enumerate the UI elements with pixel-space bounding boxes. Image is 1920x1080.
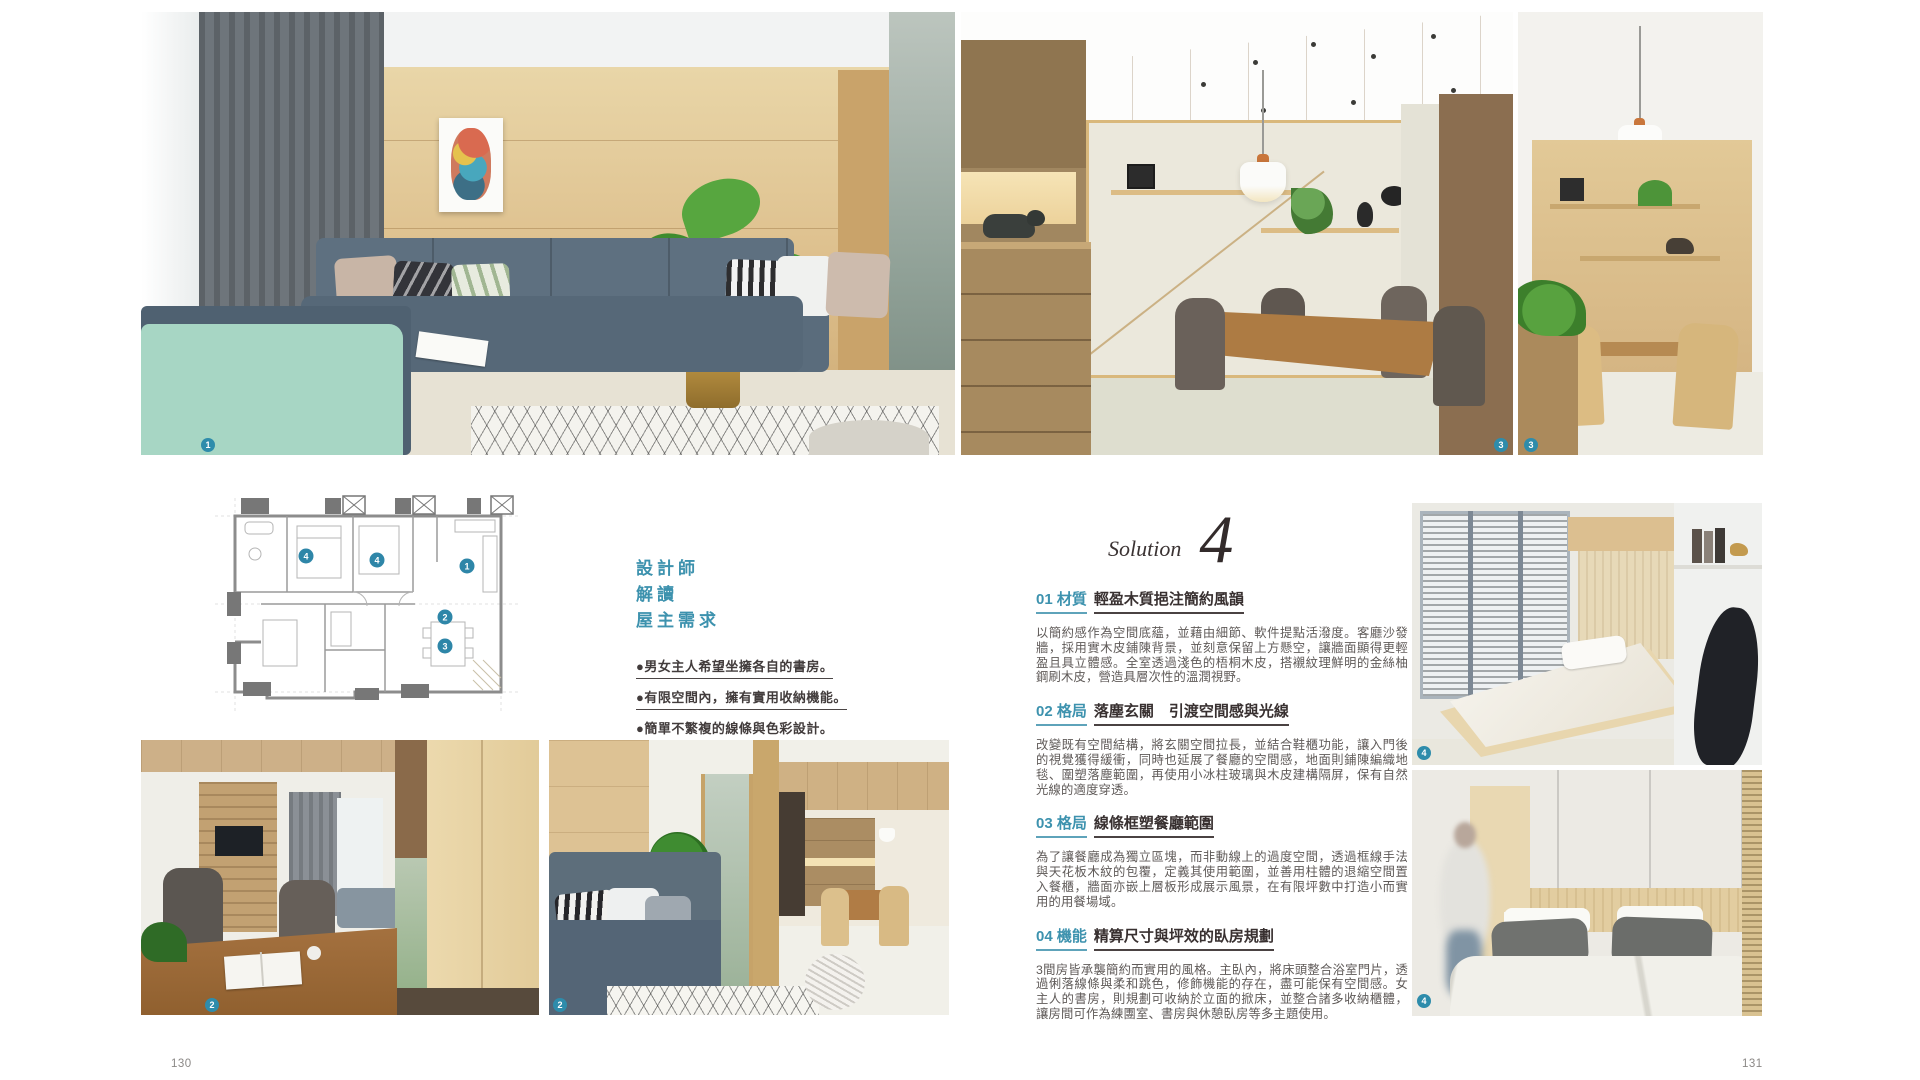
wall-shelf [1550,204,1700,209]
section-02-layout: 02 格局落塵玄關 引渡空間感與光線 改變既有空間結構，將玄關空間拉長，並結合鞋… [1036,700,1408,797]
mug [307,946,321,960]
requirement-item: ●簡單不繁複的線條與色彩設計。 [636,718,833,741]
section-heading: 03 格局線條框塑餐廳範圍 [1036,812,1408,838]
tv [215,826,263,856]
section-04-function: 04 機能精算尺寸與坪效的臥房規劃 3間房皆承襲簡約而實用的風格。主臥內，將床頭… [1036,925,1408,1022]
plan-marker-2: 2 [442,613,447,623]
downlights [1201,82,1206,87]
wardrobe [427,740,539,998]
photo-murphy-bed-room: 4 [1412,503,1762,765]
planter-box [1518,318,1578,455]
blinds [1742,770,1762,1016]
pendant-lamp [1240,162,1286,202]
wood-valance [1568,517,1680,551]
bear-artwork [439,118,503,212]
section-03-layout: 03 格局線條框塑餐廳範圍 為了讓餐廳成為獨立區塊，而非動線上的過度空間，透過框… [1036,812,1408,909]
pillow [825,251,890,318]
entry-door [777,792,805,916]
solution-sections: 01 材質輕盈木質挹注簡約風韻 以簡約感作為空間底蘊，並藉由細節、軟件提點活潑度… [1036,588,1408,1037]
bed-duvet [1450,956,1762,1016]
wood-column [753,740,779,992]
designer-notes-title: 設計師 解讀 屋主需求 [636,556,866,634]
hanging-plant [1291,188,1333,236]
window [337,798,383,896]
photo-study-corridor: 2 [141,740,539,1015]
photo-dining-room: 3 [961,12,1513,455]
wall-shelf [1261,228,1399,233]
requirement-item: ●有限空間內，擁有實用收納機能。 [636,687,847,710]
wood-chair [879,886,909,946]
gold-bird-ornament [1730,543,1748,556]
page-number-right: 131 [1742,1058,1763,1070]
solution-label: Solution [1108,536,1181,570]
plan-marker-3: 3 [442,642,447,652]
vase [1357,202,1373,227]
solution-number: 4 [1199,508,1233,570]
photo-number-badge: 3 [1494,438,1508,452]
section-body: 為了讓餐廳成為獨立區塊，而非動線上的過度空間，透過框線手法與天花板木紋的包覆，定… [1036,850,1408,909]
photo-number-badge: 2 [205,998,219,1012]
photo-number-badge: 4 [1417,746,1431,760]
section-body: 以簡約感作為空間底蘊，並藉由細節、軟件提點活潑度。客廳沙發牆，採用實木皮鋪陳背景… [1036,626,1408,685]
books [1692,529,1702,563]
section-heading: 04 機能精算尺寸與坪效的臥房規劃 [1036,925,1408,951]
dining-chair [1433,306,1485,406]
floor-plan: 4 4 1 2 3 [205,492,530,720]
plan-marker-1: 1 [464,562,469,572]
wood-chair [1672,322,1739,430]
dining-chair [1175,298,1225,390]
photo-number-badge: 1 [201,438,215,452]
section-heading: 01 材質輕盈木質挹注簡約風韻 [1036,588,1408,614]
plant [141,922,187,962]
photo-number-badge: 3 [1524,438,1538,452]
framed-photo [1560,178,1584,201]
mint-throw-blanket [141,324,403,455]
knit-pouf [809,420,929,455]
designer-notes: 設計師 解讀 屋主需求 ●男女主人希望坐擁各自的書房。 ●有限空間內，擁有實用收… [636,556,866,749]
photo-dining-nook: 3 [1518,12,1763,455]
page-number-left: 130 [171,1058,192,1070]
photo-living-room: 1 [141,12,955,455]
geometric-rug [607,986,819,1015]
magazine-spread: DESIGN 1 [0,0,1920,1080]
figurine [1666,238,1694,254]
section-heading: 02 格局落塵玄關 引渡空間感與光線 [1036,700,1408,726]
plant [1638,180,1672,206]
requirement-item: ●男女主人希望坐擁各自的書房。 [636,656,833,679]
plan-marker-4a: 4 [303,552,308,562]
section-body: 改變既有空間結構，將玄關空間拉長，並結合鞋櫃功能，讓入門後的視覺獲得緩衝，同時也… [1036,738,1408,797]
photo-entry-sofa: 2 [549,740,949,1015]
plan-marker-4b: 4 [374,556,379,566]
sideboard [961,249,1091,455]
owner-requirements-list: ●男女主人希望坐擁各自的書房。 ●有限空間內，擁有實用收納機能。 ●簡單不繁複的… [636,656,866,741]
section-01-material: 01 材質輕盈木質挹注簡約風韻 以簡約感作為空間底蘊，並藉由細節、軟件提點活潑度… [1036,588,1408,685]
section-body: 3間房皆承襲簡約而實用的風格。主臥內，將床頭整合浴室門片，透過俐落線條與柔和跳色… [1036,963,1408,1022]
wall-shelf [1580,256,1720,261]
framed-photo [1127,164,1155,189]
wood-chair [821,888,849,946]
knit-pouf [805,954,865,1010]
photo-master-bedroom: 4 [1412,770,1762,1016]
photo-number-badge: 4 [1417,994,1431,1008]
wood-column [838,70,892,395]
venetian-blinds-window [1420,511,1570,699]
pendant-lamp [879,828,895,842]
photo-number-badge: 2 [553,998,567,1012]
solution-heading: Solution 4 [1108,508,1233,570]
